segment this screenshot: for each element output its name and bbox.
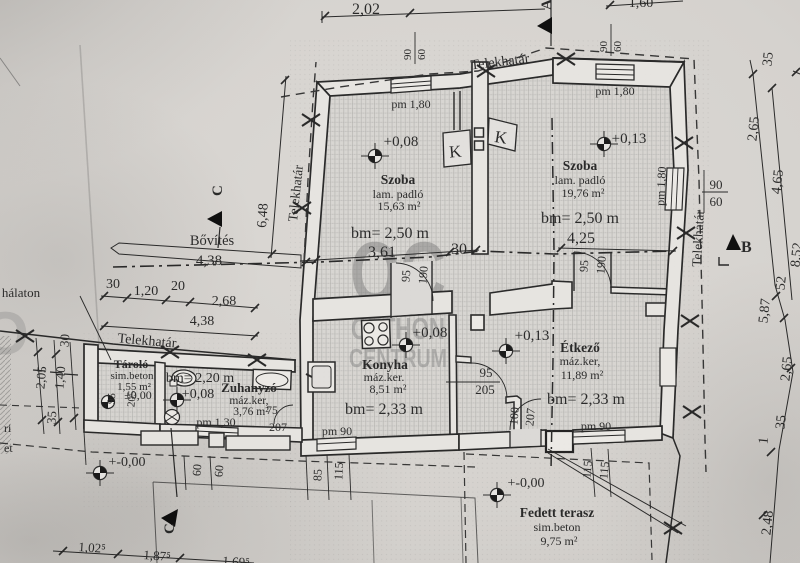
svg-text:190: 190 — [593, 255, 609, 274]
svg-text:207: 207 — [269, 420, 287, 434]
svg-text:Telekhatár: Telekhatár — [689, 209, 707, 267]
svg-text:6,48: 6,48 — [255, 203, 272, 228]
svg-text:60: 60 — [189, 463, 204, 476]
svg-text:75: 75 — [266, 405, 278, 417]
svg-text:1,40: 1,40 — [51, 366, 68, 390]
svg-text:9,75 m²: 9,75 m² — [541, 534, 578, 548]
svg-text:35: 35 — [760, 51, 776, 66]
svg-text:4,65: 4,65 — [769, 169, 786, 195]
svg-text:1,60: 1,60 — [629, 0, 654, 11]
svg-text:95: 95 — [398, 269, 413, 282]
svg-text:máz.ker,: máz.ker, — [560, 354, 601, 368]
svg-text:Fedett terasz: Fedett terasz — [520, 505, 595, 520]
svg-text:1,20: 1,20 — [134, 284, 159, 299]
svg-text:5,87: 5,87 — [756, 298, 773, 324]
svg-text:100: 100 — [506, 406, 522, 425]
svg-text:30: 30 — [451, 241, 467, 258]
svg-text:+-0,00: +-0,00 — [108, 455, 145, 470]
svg-text:hálaton: hálaton — [2, 285, 41, 300]
svg-text:ri: ri — [4, 421, 12, 435]
svg-text:Szoba: Szoba — [563, 158, 598, 173]
svg-text:30: 30 — [56, 333, 72, 347]
svg-text:52: 52 — [773, 275, 789, 290]
svg-text:Étkező: Étkező — [560, 340, 600, 355]
svg-text:pm 1,80: pm 1,80 — [653, 166, 669, 206]
svg-text:+-0,00: +-0,00 — [507, 476, 544, 491]
svg-text:11,89 m²: 11,89 m² — [561, 368, 604, 382]
svg-text:pm 90: pm 90 — [581, 419, 611, 433]
svg-text:2,05: 2,05 — [32, 366, 49, 390]
svg-text:90: 90 — [402, 49, 414, 61]
svg-text:A: A — [539, 0, 555, 10]
svg-text:2,48: 2,48 — [759, 510, 776, 536]
svg-text:+0,13: +0,13 — [612, 131, 647, 147]
svg-text:30: 30 — [106, 277, 120, 292]
svg-text:35: 35 — [773, 414, 789, 429]
svg-text:205: 205 — [125, 390, 138, 408]
svg-text:pm 1,30: pm 1,30 — [196, 415, 235, 429]
svg-text:205: 205 — [475, 382, 495, 397]
svg-text:60: 60 — [211, 464, 226, 477]
svg-text:15,63 m²: 15,63 m² — [378, 199, 421, 213]
svg-text:2,65: 2,65 — [745, 116, 762, 142]
svg-text:3,61: 3,61 — [368, 244, 396, 261]
svg-text:95: 95 — [576, 259, 591, 272]
svg-text:8,51 m²: 8,51 m² — [370, 382, 407, 396]
svg-text:20: 20 — [171, 279, 185, 294]
svg-text:sim.beton: sim.beton — [534, 520, 581, 534]
svg-text:90: 90 — [710, 177, 723, 192]
svg-text:+0,08: +0,08 — [413, 325, 448, 341]
svg-text:Bővítés: Bővítés — [190, 233, 235, 249]
svg-text:1,69⁵: 1,69⁵ — [222, 553, 250, 563]
svg-text:Tároló: Tároló — [114, 357, 148, 371]
svg-text:pm 1,80: pm 1,80 — [595, 84, 634, 98]
svg-text:60: 60 — [612, 41, 624, 53]
svg-text:bm= 2,50 m: bm= 2,50 m — [351, 225, 429, 242]
svg-text:C: C — [210, 185, 226, 196]
svg-text:bm= 2,50 m: bm= 2,50 m — [541, 210, 619, 227]
svg-text:B: B — [741, 239, 752, 256]
svg-text:+0,13: +0,13 — [515, 328, 550, 344]
svg-text:190: 190 — [415, 265, 431, 284]
svg-text:C: C — [162, 523, 178, 534]
svg-text:2,02: 2,02 — [352, 1, 380, 18]
svg-text:85: 85 — [310, 469, 325, 482]
svg-text:3,76 m²: 3,76 m² — [233, 406, 269, 418]
svg-text:19,76 m²: 19,76 m² — [562, 186, 605, 200]
svg-text:2,68: 2,68 — [212, 294, 237, 309]
svg-text:4,38: 4,38 — [196, 253, 222, 269]
svg-text:8,52: 8,52 — [788, 242, 800, 268]
svg-text:4,25: 4,25 — [567, 230, 595, 247]
svg-text:60: 60 — [416, 49, 428, 61]
svg-text:95: 95 — [105, 392, 118, 405]
svg-text:K: K — [448, 142, 463, 162]
svg-text:et: et — [4, 441, 13, 455]
svg-text:115: 115 — [331, 462, 346, 480]
svg-text:+0,08: +0,08 — [384, 134, 419, 150]
svg-text:bm= 2,33 m: bm= 2,33 m — [547, 391, 625, 408]
svg-text:4,38: 4,38 — [190, 314, 215, 329]
svg-text:+0,08: +0,08 — [182, 387, 214, 402]
svg-text:pm 1,80: pm 1,80 — [391, 97, 430, 111]
svg-text:bm= 2,33 m: bm= 2,33 m — [345, 401, 423, 418]
svg-text:1,02⁵: 1,02⁵ — [78, 539, 106, 556]
svg-text:lam. padló: lam. padló — [555, 173, 606, 187]
svg-text:90: 90 — [598, 41, 610, 53]
svg-text:pm 90: pm 90 — [322, 424, 352, 438]
svg-text:60: 60 — [710, 194, 723, 209]
svg-text:2,65: 2,65 — [778, 356, 795, 382]
svg-text:207: 207 — [522, 407, 538, 426]
svg-text:1,87⁵: 1,87⁵ — [143, 547, 171, 563]
svg-text:Zuhanyzó: Zuhanyzó — [221, 380, 277, 395]
svg-text:Szoba: Szoba — [381, 172, 416, 187]
svg-text:95: 95 — [480, 365, 493, 380]
